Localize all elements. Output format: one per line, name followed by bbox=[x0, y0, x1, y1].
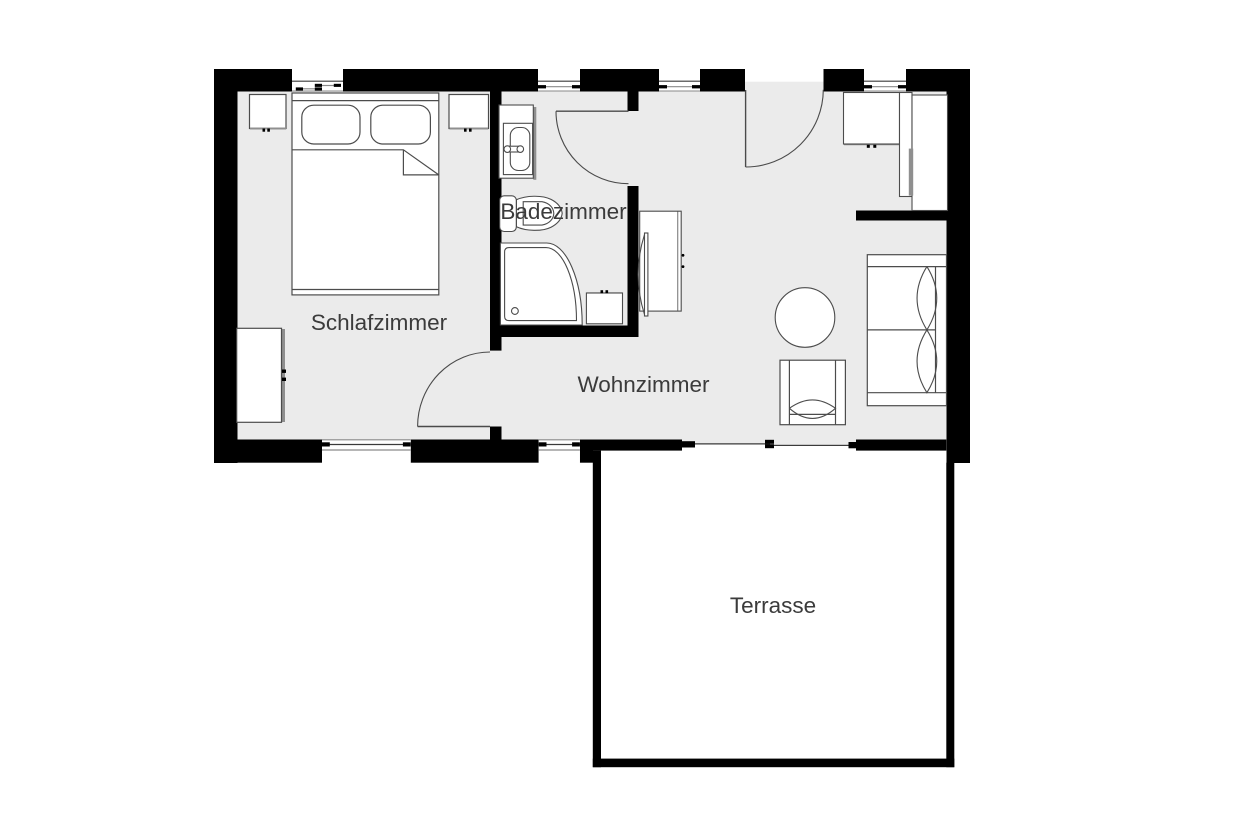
svg-text:Wohnzimmer: Wohnzimmer bbox=[577, 372, 710, 397]
svg-text:Badezimmer: Badezimmer bbox=[500, 199, 627, 224]
svg-text:Terrasse: Terrasse bbox=[730, 593, 816, 618]
svg-text:Schlafzimmer: Schlafzimmer bbox=[311, 310, 448, 335]
